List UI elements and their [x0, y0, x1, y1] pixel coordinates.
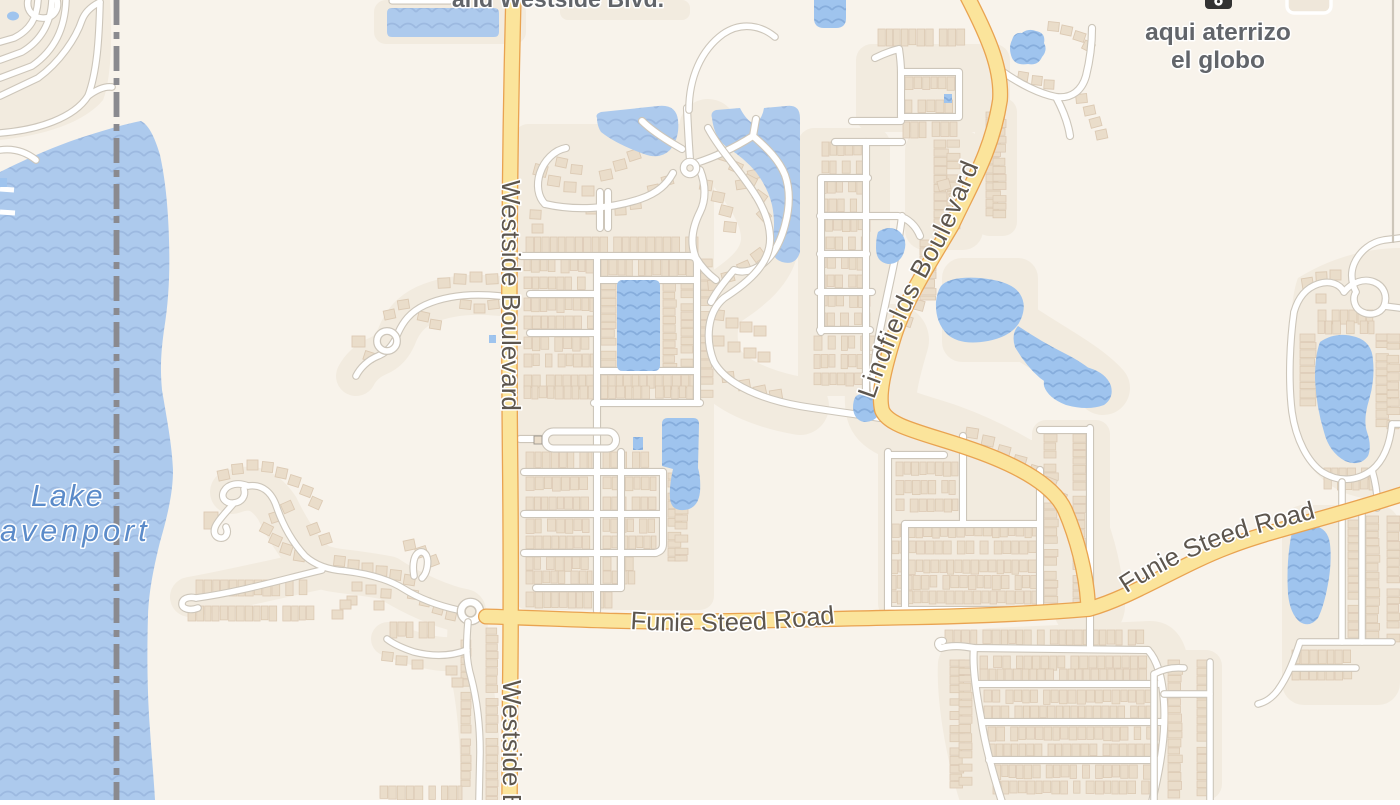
svg-text:Davenport: Davenport [0, 514, 151, 548]
svg-text:Lake: Lake [31, 479, 104, 513]
svg-text:el globo: el globo [1171, 47, 1265, 74]
svg-text:aqui aterrizo: aqui aterrizo [1145, 19, 1291, 46]
svg-text:and Westside Blvd.: and Westside Blvd. [452, 0, 664, 12]
svg-text:Westside Boulevard: Westside Boulevard [496, 180, 526, 411]
